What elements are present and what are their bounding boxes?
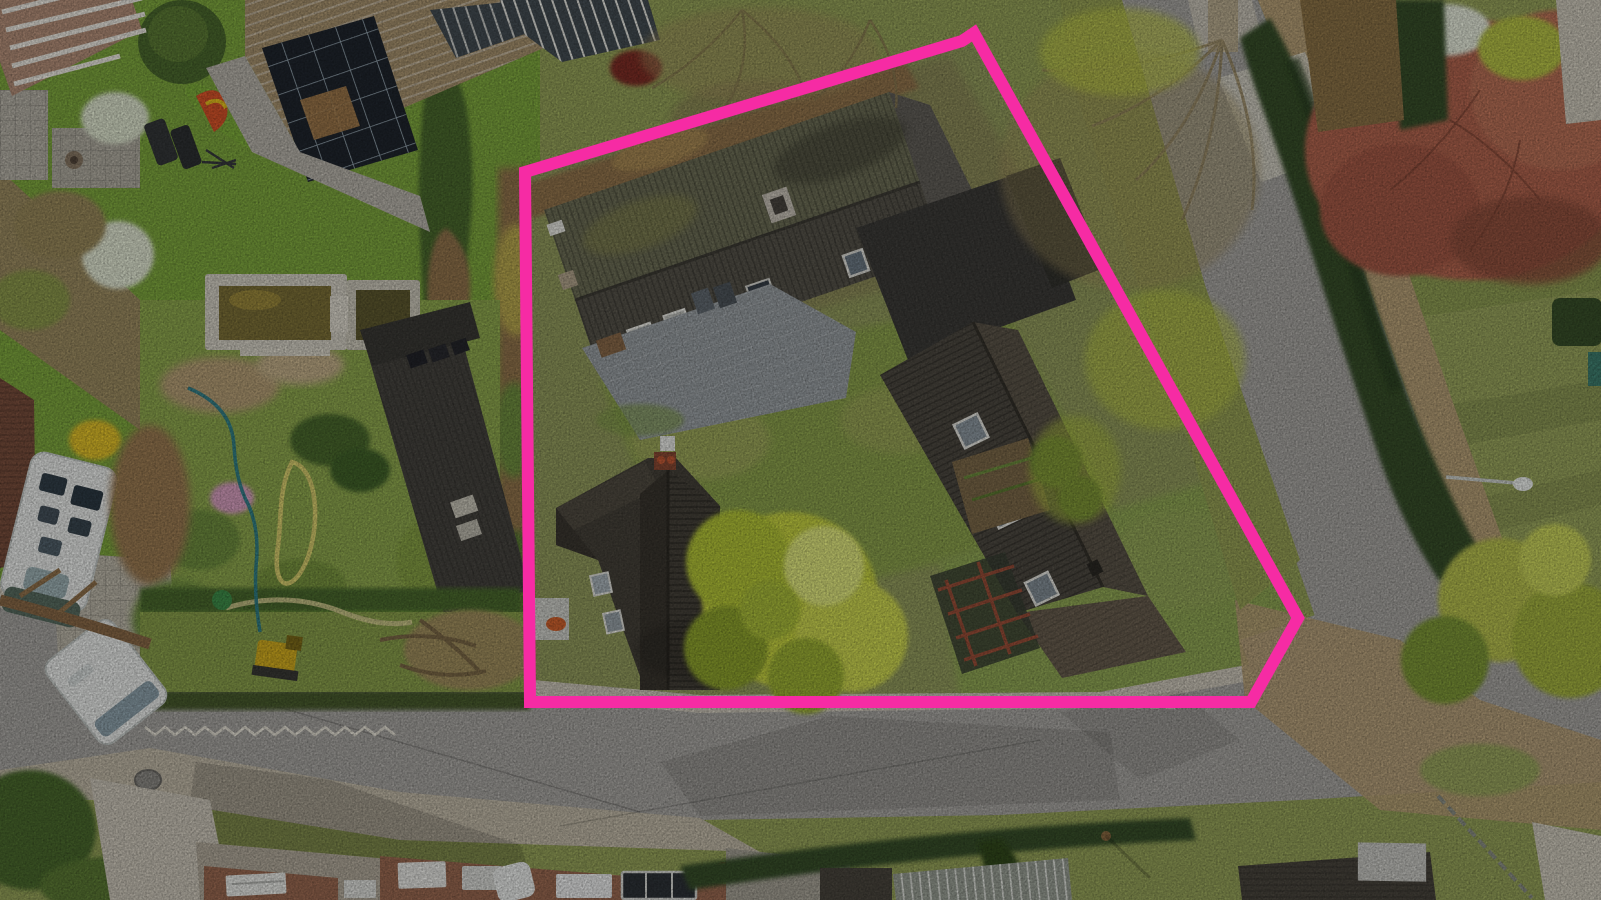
aerial-photo-canvas: property-boundary	[0, 0, 1601, 900]
aerial-photo: property-boundary	[0, 0, 1601, 900]
photo-grain	[0, 0, 1601, 900]
